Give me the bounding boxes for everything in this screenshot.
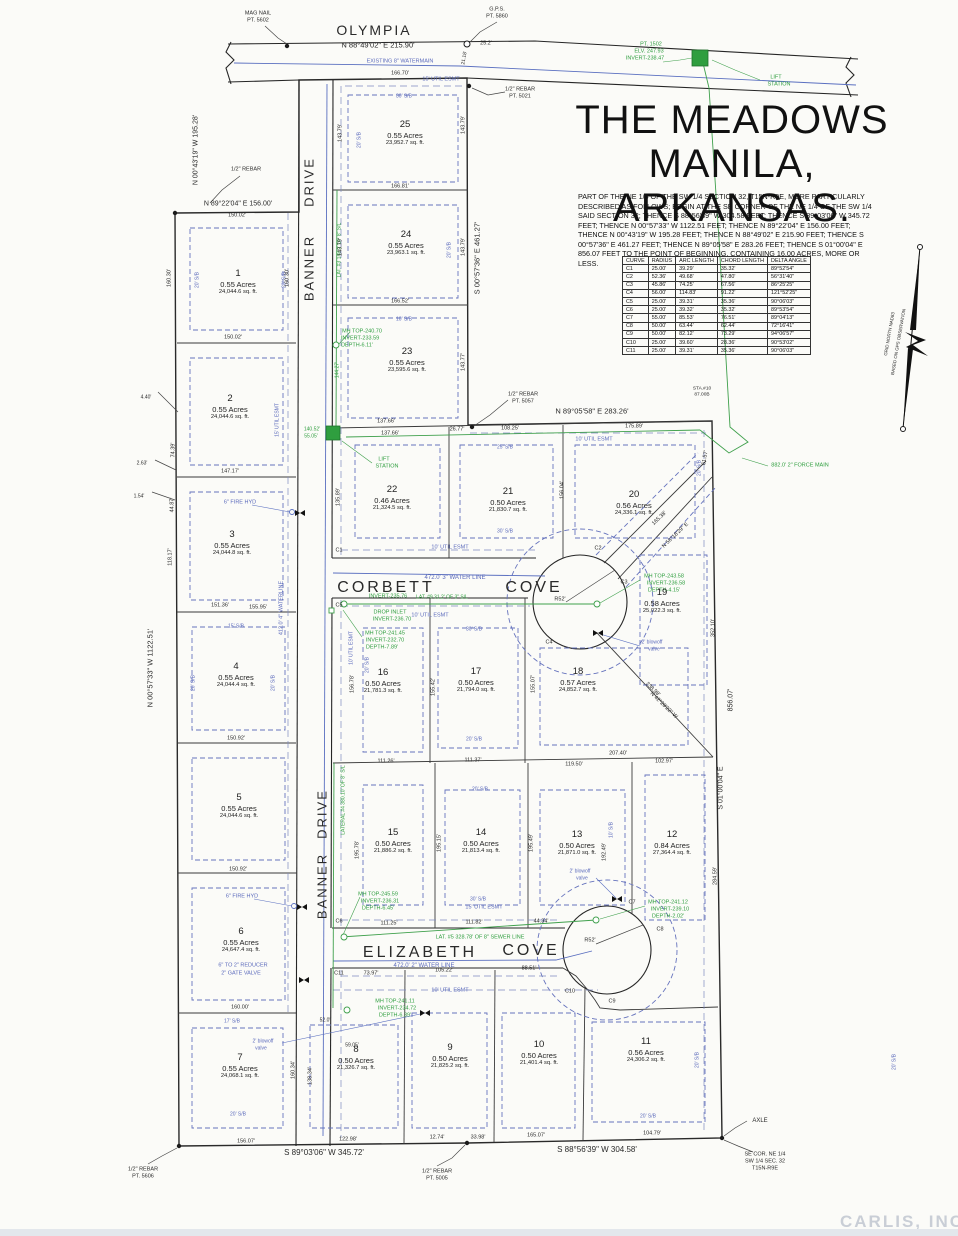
lot-23-label: 230.55 Acres23,595.6 sq. ft. xyxy=(388,346,426,374)
lot-17-label: 170.50 Acres21,794.0 sq. ft. xyxy=(457,666,495,694)
map-label: 21.18' xyxy=(461,51,468,65)
map-label: 137.66' xyxy=(381,431,399,437)
map-label: N 42°28'22" W xyxy=(648,692,678,721)
map-label: 140.52' xyxy=(304,428,320,433)
map-label: 10' S/B xyxy=(610,822,615,838)
map-label: N 89°05'58" E 283.26' xyxy=(555,407,628,415)
map-label: 30' S/B xyxy=(497,530,513,535)
scan-edge-band xyxy=(0,1229,958,1236)
curve-table-row: C345.86'74.25'67.56'86°25'25" xyxy=(623,281,811,289)
map-label: 6" FIRE HYD xyxy=(226,894,258,900)
map-label: N 00°43'19" W 195.28' xyxy=(193,115,200,185)
map-label: 143.79' xyxy=(461,116,467,134)
map-label: 10' UTIL ESMT xyxy=(350,631,355,665)
map-label: 52.0' xyxy=(320,1019,331,1024)
map-label: 856.07' xyxy=(728,689,735,712)
lot-18-label: 180.57 Acres24,852.7 sq. ft. xyxy=(559,666,597,694)
map-label: DEPTH-7.89' xyxy=(366,645,398,651)
map-label: MH TOP-241.45 xyxy=(365,631,405,637)
map-label: MAG NAIL xyxy=(245,11,271,17)
map-label: EXISTING 8" WATERMAIN xyxy=(367,59,434,65)
map-label: BANNER xyxy=(303,235,316,301)
lot-20-label: 200.56 Acres24,336.1 sq. ft. xyxy=(615,489,653,517)
map-label: COVE xyxy=(505,580,562,596)
map-label: MH TOP-241.11 xyxy=(375,999,414,1005)
map-label: 2' blowoff xyxy=(570,870,591,875)
map-label: AXLE xyxy=(752,1118,767,1124)
map-label: N 56°18'29" E xyxy=(662,522,690,550)
map-label: valve xyxy=(648,648,660,653)
map-label: 1/2" REBAR xyxy=(231,167,261,173)
lot-5-label: 50.55 Acres24,044.6 sq. ft. xyxy=(220,792,258,820)
map-label: 20' S/B xyxy=(472,788,488,793)
map-label: 20' S/B xyxy=(893,1054,898,1070)
lot-15-label: 150.50 Acres21,886.2 sq. ft. xyxy=(374,827,412,855)
curve-table-row: C456.00'114.83'91.22'121°52'25" xyxy=(623,289,811,297)
map-label: 61.57' xyxy=(702,450,710,466)
map-label: STATION xyxy=(767,82,790,88)
map-label: N 89°22'04" E 156.00' xyxy=(204,201,272,208)
map-label: 166.52' xyxy=(391,299,409,305)
map-label: C6 xyxy=(335,919,342,925)
map-label: 135.89' xyxy=(336,488,342,506)
map-label: 1/2" REBAR xyxy=(422,1169,452,1175)
lot-21-label: 210.50 Acres21,830.7 sq. ft. xyxy=(489,486,527,514)
map-label: 2" GATE VALVE xyxy=(221,971,261,977)
map-label: 102.97' xyxy=(655,759,673,765)
map-label: 20' S/B xyxy=(196,272,201,288)
map-label: LIFT xyxy=(378,457,389,463)
map-label: 20' S/B xyxy=(192,675,197,691)
lot-12-label: 120.84 Acres27,364.4 sq. ft. xyxy=(653,829,691,857)
map-label: 472.0' 3" WATER LINE xyxy=(425,575,486,581)
map-label: 160.34' xyxy=(291,1061,297,1079)
map-label: C10 xyxy=(565,989,575,995)
map-label: 25.2' xyxy=(480,41,492,47)
map-label: INVERT-233.59 xyxy=(341,336,379,342)
map-label: 160.30' xyxy=(285,269,291,287)
curve-table-row: C1125.00'39.31'35.36'90°06'03" xyxy=(623,347,811,355)
curve-table-header: CURVE xyxy=(623,257,649,265)
curve-table-row: C125.00'39.29'35.32'89°52'54" xyxy=(623,265,811,273)
map-label: 156.78' xyxy=(350,675,356,693)
map-label: 4.40' xyxy=(141,396,152,401)
map-label: DROP INLET xyxy=(374,610,407,616)
map-label: 111.37' xyxy=(464,758,481,764)
map-label: 155.42' xyxy=(431,678,437,696)
curve-table-row: C625.00'39.32'35.32'89°53'54" xyxy=(623,306,811,314)
map-label: 1/2" REBAR xyxy=(508,392,538,398)
map-label: 143.77' xyxy=(461,353,467,371)
map-label: 137.66' xyxy=(377,419,395,425)
map-label: 55.05' xyxy=(304,435,317,440)
plat-title-line1: THE MEADOWS xyxy=(552,98,912,142)
curve-table-header: CHORD LENGTH xyxy=(717,257,767,265)
map-label: ELV. 247.93 xyxy=(634,49,663,55)
map-label: C9 xyxy=(608,999,615,1005)
map-label: MH TOP-241.12 xyxy=(648,900,688,906)
map-label: 30' S/B xyxy=(470,898,486,903)
map-label: PT. 5021 xyxy=(509,94,531,100)
map-label: 20' S/B xyxy=(358,132,363,148)
map-label: 111.26' xyxy=(377,759,394,765)
map-label: N 88°49'02" E 215.90' xyxy=(341,41,414,49)
map-label: S 88°56'39" W 304.58' xyxy=(557,1146,637,1154)
map-label: 105.22' xyxy=(435,968,453,974)
map-label: PT. 5005 xyxy=(426,1176,448,1182)
map-label: DRIVE xyxy=(303,157,316,207)
map-label: S 01°00'04" E xyxy=(718,766,725,809)
map-label: 160.00' xyxy=(231,1005,249,1011)
map-label: C3 xyxy=(620,580,627,586)
lot-10-label: 100.50 Acres21,401.4 sq. ft. xyxy=(520,1039,558,1067)
map-label: 104.79' xyxy=(643,1131,661,1137)
map-label: INVERT-232.70 xyxy=(366,638,404,644)
map-label: 156.04' xyxy=(560,481,566,499)
map-label: 1/2" REBAR xyxy=(128,1167,158,1173)
map-label: DEPTH-6.45' xyxy=(362,906,394,912)
map-label: 2.63' xyxy=(137,462,148,467)
map-label: 73.97' xyxy=(364,971,379,977)
map-label: 108.25' xyxy=(501,426,519,432)
map-label: DEPTH-6.11' xyxy=(341,343,373,349)
lot-11-label: 110.56 Acres24,306.2 sq. ft. xyxy=(627,1036,665,1064)
map-label: 284.59' xyxy=(713,867,719,885)
map-label: 15' UTIL ESMT xyxy=(276,403,281,437)
lot-4-label: 40.55 Acres24,044.4 sq. ft. xyxy=(217,661,255,689)
map-label: valve xyxy=(255,1047,267,1052)
map-label: 143.79' xyxy=(338,238,344,256)
map-label: INVERT-236.70 xyxy=(373,617,411,623)
map-label: 26.77' xyxy=(450,427,465,433)
map-label: DRIVE xyxy=(316,789,329,839)
map-label: 111.25' xyxy=(380,921,397,927)
map-label: SE COR. NE 1/4 xyxy=(745,1152,786,1158)
map-label: 10' S/B xyxy=(396,318,412,323)
map-label: 150.92' xyxy=(229,867,247,873)
lot-7-label: 70.55 Acres24,068.1 sq. ft. xyxy=(221,1052,259,1080)
lot-25-label: 250.55 Acres23,952.7 sq. ft. xyxy=(386,119,424,147)
map-label: 150.92' xyxy=(227,736,245,742)
map-label: MH TOP-245.59 xyxy=(358,892,398,898)
map-label: 175.89' xyxy=(625,424,643,430)
map-label: MH TOP-240.70 xyxy=(342,329,382,335)
map-label: 166.70' xyxy=(391,71,409,77)
map-label: 192.49' xyxy=(602,843,608,861)
map-label: 10' UTIL ESMT xyxy=(411,613,448,619)
map-label: 165.07' xyxy=(527,1133,545,1139)
map-label: 20' S/B xyxy=(696,1052,701,1068)
map-label: 119.50' xyxy=(565,762,582,768)
map-label: DEPTH-6.39' xyxy=(379,1013,411,1019)
map-label: PT. 1502 xyxy=(640,42,662,48)
map-label: R52' xyxy=(554,597,565,603)
curve-table-row: C252.36'49.68'47.80'56°31'40" xyxy=(623,273,811,281)
map-label: 147.17' xyxy=(221,469,239,475)
map-label: 10' UTIL ESMT xyxy=(575,437,612,443)
curve-table-row: C755.00'85.53'76.51'89°04'13" xyxy=(623,314,811,322)
map-label: LATERAL #4 380.10' OF 8" S/L xyxy=(342,765,347,834)
map-label: 155.95' xyxy=(249,605,267,611)
map-label: 20' S/B xyxy=(640,1115,656,1120)
map-label: 6" FIRE HYD xyxy=(224,500,256,506)
lot-2-label: 20.55 Acres24,044.6 sq. ft. xyxy=(211,393,249,421)
map-label: 10' UTIL ESMT xyxy=(431,988,468,994)
map-label: 1/2" REBAR xyxy=(505,87,535,93)
map-label: C4 xyxy=(545,640,552,646)
lot-8-label: 80.50 Acres21,326.7 sq. ft. xyxy=(337,1044,375,1072)
map-label: INVERT-235.76 xyxy=(369,594,407,600)
curve-table: CURVERADIUSARC LENGTHCHORD LENGTHDELTA A… xyxy=(622,256,811,355)
map-label: C8 xyxy=(656,927,663,933)
map-label: 20' S/B xyxy=(230,1113,246,1118)
map-label: PT. 5860 xyxy=(486,14,508,20)
curve-table-row: C850.00'63.44'62.44'72°16'41" xyxy=(623,322,811,330)
lot-24-label: 240.55 Acres23,963.1 sq. ft. xyxy=(387,229,425,257)
lot-22-label: 220.46 Acres21,324.5 sq. ft. xyxy=(373,484,411,512)
map-label: 6" TO 2" REDUCER xyxy=(218,963,267,969)
map-label: 88.51' xyxy=(522,966,537,972)
map-label: LAT. #5 328.78' OF 8" SEWER LINE xyxy=(436,935,525,941)
map-label: 2' blowoff xyxy=(253,1040,274,1045)
map-label: 2' blowoff xyxy=(642,641,663,646)
map-label: INVERT-234.72 xyxy=(378,1006,416,1012)
map-label: OLYMPIA xyxy=(336,23,411,37)
map-label: 195.78' xyxy=(355,841,361,859)
map-label: 122.98' xyxy=(339,1137,357,1143)
map-label: 44.87' xyxy=(170,498,176,513)
lot-16-label: 160.50 Acres21,781.3 sq. ft. xyxy=(364,667,402,695)
map-label: INVERT-239.10 xyxy=(651,907,689,913)
lot-14-label: 140.50 Acres21,813.4 sq. ft. xyxy=(462,827,500,855)
map-label: 882.0' 2" FORCE MAIN xyxy=(771,463,828,469)
map-label: 143.79' xyxy=(338,124,344,142)
map-label: 20' S/B xyxy=(448,242,453,258)
curve-table-header: ARC LENGTH xyxy=(676,257,718,265)
lot-9-label: 90.50 Acres21,825.2 sq. ft. xyxy=(431,1042,469,1070)
map-label: 12.74' xyxy=(430,1135,445,1141)
map-label: 33.98' xyxy=(471,1135,486,1141)
map-label: 166.81' xyxy=(391,184,409,190)
curve-table-row: C1025.00'39.60'28.36'90°53'02" xyxy=(623,339,811,347)
map-label: INVERT-238.47 xyxy=(626,56,664,62)
map-label: 352.10' xyxy=(711,619,717,637)
map-label: 10' UTIL ESMT xyxy=(431,545,468,551)
map-label: 144.27' xyxy=(336,362,341,378)
map-label: G.P.S. xyxy=(489,7,505,13)
map-label: C1 xyxy=(335,548,342,554)
map-label: 143.79' xyxy=(461,238,467,256)
map-label: C5 xyxy=(335,603,342,609)
map-label: 87.00B xyxy=(694,394,709,399)
map-label: C11 xyxy=(334,971,344,977)
map-label: MH TOP-243.58 xyxy=(644,574,684,580)
map-label: 25' S/B xyxy=(497,446,513,451)
curve-table-row: C950.00'82.12'73.29'94°06'57" xyxy=(623,330,811,338)
map-label: R52' xyxy=(584,938,595,944)
map-label: 30' S/B xyxy=(396,95,412,100)
lot-13-label: 130.50 Acres21,871.0 sq. ft. xyxy=(558,829,596,857)
map-label: C2 xyxy=(594,546,601,552)
map-label: 15' UTIL ESMT xyxy=(422,77,459,83)
map-label: 20' S/B xyxy=(272,675,277,691)
map-label: N 00°57'33" W 1122.51' xyxy=(146,629,154,708)
map-label: 111.82' xyxy=(465,920,482,926)
map-label: 156.07' xyxy=(237,1139,255,1145)
lot-1-label: 10.55 Acres24,044.6 sq. ft. xyxy=(219,268,257,296)
map-label: T15N-R9E xyxy=(752,1166,778,1172)
lot-6-label: 60.55 Acres24,647.4 sq. ft. xyxy=(222,926,260,954)
map-label: SW 1/4 SEC. 32 xyxy=(745,1159,785,1165)
map-label: 20' S/B xyxy=(466,738,482,743)
map-label: 138.34' xyxy=(308,1067,314,1085)
map-label: 165.38' xyxy=(652,511,669,527)
curve-table-row: C525.00'39.31'35.36'90°06'03" xyxy=(623,298,811,306)
map-label: 412.0' 4" WATERLINE xyxy=(279,581,285,635)
map-label: valve xyxy=(576,877,588,882)
map-label: 160.30' xyxy=(167,269,173,287)
map-label: S 89°03'06" W 345.72' xyxy=(284,1149,364,1157)
map-label: 15' S/B xyxy=(228,625,244,630)
map-label: ELIZABETH xyxy=(363,945,477,961)
map-label: 195.49' xyxy=(529,834,535,852)
curve-table-header: RADIUS xyxy=(648,257,675,265)
map-label: 1.54' xyxy=(134,495,145,500)
plat-page: OLYMPIABANNERDRIVEBANNERDRIVECORBETTCOVE… xyxy=(0,0,958,1236)
map-label: PT. 5057 xyxy=(512,399,534,405)
map-label: C7 xyxy=(628,900,635,906)
map-label: 151.36' xyxy=(211,603,229,609)
map-label: 150.02' xyxy=(228,213,246,219)
map-label: 15' UTIL ESMT xyxy=(465,905,502,911)
map-label: LIFT xyxy=(770,75,781,81)
map-label: 118.17' xyxy=(168,548,174,565)
map-label: 74.39' xyxy=(171,443,177,458)
map-label: 44.34' xyxy=(534,919,549,925)
map-label: 30' S/B xyxy=(466,628,482,633)
map-label: 207.40' xyxy=(609,751,627,757)
map-label: DEPTH-2.02' xyxy=(652,914,684,920)
map-label: BANNER xyxy=(316,853,329,919)
map-label: 195.15' xyxy=(437,834,443,852)
map-label: PT. 5606 xyxy=(132,1174,154,1180)
map-label: INVERT-236.31 xyxy=(361,899,399,905)
map-label: 150.02' xyxy=(224,335,242,341)
map-label: STATION xyxy=(375,464,398,470)
map-label: PT. 5602 xyxy=(247,18,269,24)
lot-19-label: 190.58 Acres25,022.3 sq. ft. xyxy=(643,587,681,615)
map-label: S 00°57'36" E 461.27' xyxy=(473,222,481,295)
map-label: COVE xyxy=(502,943,559,959)
map-label: 17' S/B xyxy=(224,1020,240,1025)
map-label: LAT. #9 31.2' OF 3" S/L xyxy=(416,596,468,601)
map-label: 155.07' xyxy=(531,675,537,693)
lot-3-label: 30.55 Acres24,044.8 sq. ft. xyxy=(213,529,251,557)
curve-table-header: DELTA ANGLE xyxy=(768,257,811,265)
